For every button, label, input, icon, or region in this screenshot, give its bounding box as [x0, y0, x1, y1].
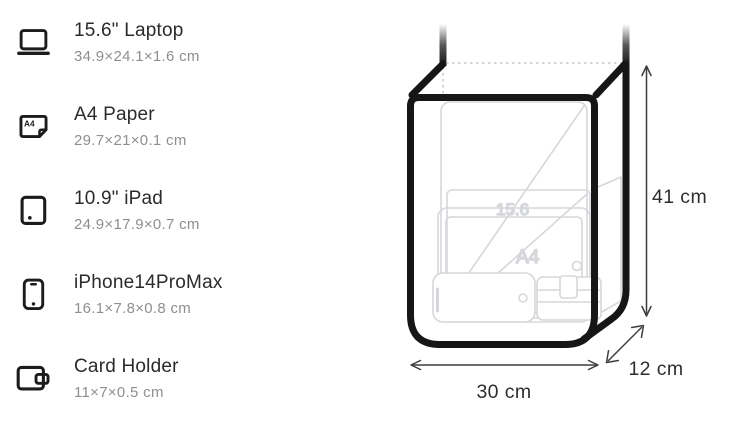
- bag-top-left-edge: [412, 64, 443, 95]
- a4-size-watermark: A4: [516, 247, 540, 268]
- bag-top-right-edge: [596, 64, 625, 95]
- width-dimension-label: 30 cm: [476, 381, 531, 403]
- bag-capacity-infographic: { "spec_list": { "items": [ { "icon": "l…: [0, 0, 750, 426]
- height-arrow: [642, 66, 651, 316]
- phone-outline: [433, 273, 535, 322]
- bag-strap-left: [440, 24, 447, 66]
- depth-arrow: [607, 326, 644, 363]
- laptop-size-watermark: 15.6: [496, 200, 529, 219]
- width-arrow: [411, 361, 598, 370]
- depth-dimension-label: 12 cm: [628, 358, 683, 380]
- bag-strap-right: [623, 24, 630, 66]
- bag-dimension-diagram: 15.6 A4: [0, 0, 750, 426]
- height-dimension-label: 41 cm: [652, 186, 707, 208]
